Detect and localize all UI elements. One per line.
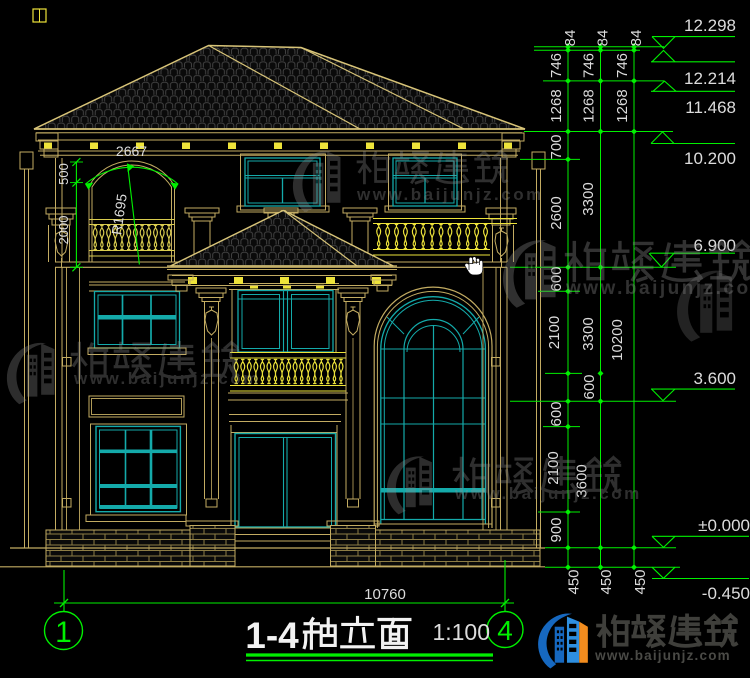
svg-text:84: 84 xyxy=(628,30,645,47)
svg-text:1268: 1268 xyxy=(614,89,631,122)
svg-text:746: 746 xyxy=(548,53,565,78)
svg-text:84: 84 xyxy=(562,30,579,47)
svg-text:1:100: 1:100 xyxy=(432,619,490,645)
svg-text:www.baijunjz.com: www.baijunjz.com xyxy=(594,648,731,663)
svg-text:1: 1 xyxy=(55,616,72,649)
svg-text:450: 450 xyxy=(598,569,615,594)
svg-text:500: 500 xyxy=(56,163,71,185)
svg-text:www.baijunjz.com: www.baijunjz.com xyxy=(356,185,544,204)
svg-text:10.200: 10.200 xyxy=(684,149,736,168)
svg-text:900: 900 xyxy=(548,517,565,542)
svg-text:4: 4 xyxy=(497,615,513,646)
svg-text:11.468: 11.468 xyxy=(685,98,736,117)
svg-text:www.baijunjz.com: www.baijunjz.com xyxy=(454,484,642,503)
svg-text:450: 450 xyxy=(566,569,583,594)
svg-text:1268: 1268 xyxy=(581,89,598,122)
svg-text:-0.450: -0.450 xyxy=(702,584,750,603)
svg-text:700: 700 xyxy=(548,134,565,159)
svg-text:2000: 2000 xyxy=(56,216,71,245)
svg-text:10760: 10760 xyxy=(364,586,406,603)
svg-text:2600: 2600 xyxy=(548,196,565,229)
svg-text:3300: 3300 xyxy=(580,182,597,215)
svg-text:2667: 2667 xyxy=(116,143,147,159)
svg-text:3.600: 3.600 xyxy=(693,369,736,388)
svg-text:±0.000: ±0.000 xyxy=(698,516,750,535)
svg-text:12.298: 12.298 xyxy=(684,16,736,35)
svg-text:600: 600 xyxy=(548,401,565,426)
svg-text:10200: 10200 xyxy=(609,319,626,361)
svg-text:1268: 1268 xyxy=(548,89,565,122)
svg-text:746: 746 xyxy=(614,53,631,78)
svg-text:1-4: 1-4 xyxy=(245,615,299,656)
svg-text:600: 600 xyxy=(581,374,598,399)
svg-text:450: 450 xyxy=(632,569,649,594)
svg-text:3300: 3300 xyxy=(580,317,597,350)
svg-text:www.baijunjz.com: www.baijunjz.com xyxy=(73,369,261,388)
svg-text:746: 746 xyxy=(581,53,598,78)
svg-text:2100: 2100 xyxy=(546,316,563,349)
svg-text:84: 84 xyxy=(595,30,612,47)
svg-text:12.214: 12.214 xyxy=(684,69,736,88)
